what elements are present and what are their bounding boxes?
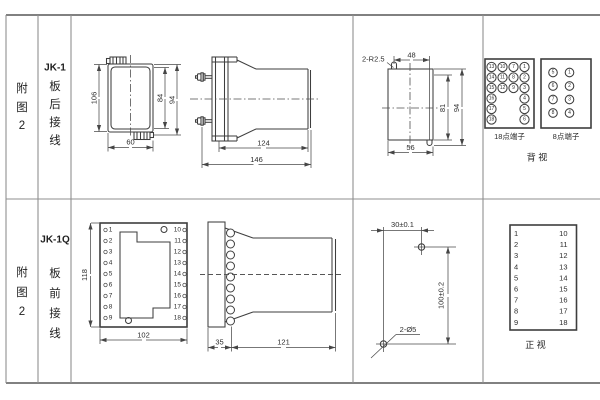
dim-81: 81 bbox=[438, 104, 447, 112]
dim-146: 146 bbox=[250, 155, 263, 164]
terminal-number: 8 bbox=[552, 110, 555, 116]
terminal-block-8-label: 8点端子 bbox=[553, 131, 580, 141]
terminal-number: 4 bbox=[514, 262, 518, 271]
terminal-number: 4 bbox=[109, 260, 113, 267]
terminal-number: 4 bbox=[568, 110, 571, 116]
dim-56: 56 bbox=[406, 143, 414, 152]
fig-char: 附 bbox=[16, 265, 28, 279]
terminal-number: 3 bbox=[523, 85, 526, 91]
slot-radius-label: 2-R2.5 bbox=[362, 55, 385, 64]
terminal-number: 10 bbox=[174, 227, 182, 234]
back-view-label: 背 视 bbox=[527, 152, 548, 163]
dim-48: 48 bbox=[407, 51, 415, 60]
wiring-char: 板 bbox=[49, 266, 61, 280]
terminal-number: 17 bbox=[489, 106, 495, 112]
terminal-screw-bottom bbox=[196, 117, 213, 125]
terminal-number: 6 bbox=[514, 285, 518, 294]
terminal-number: 12 bbox=[174, 249, 182, 256]
cutout-outline bbox=[388, 69, 433, 140]
terminal-number: 17 bbox=[174, 304, 182, 311]
terminal-rings bbox=[227, 229, 235, 325]
terminal-number: 15 bbox=[489, 85, 495, 91]
terminal-number: 15 bbox=[174, 282, 182, 289]
terminal-number: 18 bbox=[489, 117, 495, 123]
terminal-number: 6 bbox=[109, 282, 113, 289]
terminal-bump-bottom bbox=[134, 132, 150, 140]
dim-94: 94 bbox=[168, 96, 177, 104]
wiring-char: 线 bbox=[49, 326, 61, 340]
dim-118: 118 bbox=[80, 269, 89, 281]
terminal-block-8: 5 1 6 2 7 3 8 4 8点端子 bbox=[541, 59, 591, 141]
dim-94-cutout: 94 bbox=[452, 104, 461, 112]
drawing-drill-pattern: 30±0.1 100±0.2 2-Ø5 bbox=[371, 220, 456, 358]
plate-cutout bbox=[120, 232, 170, 318]
terminal-number: 8 bbox=[512, 75, 515, 81]
terminal-number: 12 bbox=[559, 251, 567, 260]
terminal-number: 2 bbox=[523, 75, 526, 81]
fig-char: 图 bbox=[16, 101, 28, 114]
terminal-number: 18 bbox=[559, 318, 567, 327]
wiring-char: 前 bbox=[49, 286, 61, 300]
wiring-char: 接 bbox=[49, 116, 61, 129]
terminal-number: 17 bbox=[559, 307, 567, 316]
terminal-number: 1 bbox=[568, 70, 571, 76]
terminal-number: 1 bbox=[109, 227, 113, 234]
terminal-number: 7 bbox=[109, 293, 113, 300]
dim-100: 100±0.2 bbox=[437, 282, 446, 309]
row-jk1-title: JK-1 板 后 接 线 bbox=[44, 63, 66, 148]
terminal-number: 13 bbox=[559, 262, 567, 271]
diagram-canvas: 附 图 2 JK-1 板 后 接 线 106 bbox=[0, 0, 600, 400]
terminal-number: 9 bbox=[512, 85, 515, 91]
terminal-number: 11 bbox=[560, 240, 568, 249]
fig-char: 2 bbox=[19, 120, 25, 132]
terminal-number: 11 bbox=[174, 238, 181, 245]
terminal-number: 15 bbox=[559, 285, 567, 294]
terminal-block-18: 13 10 7 1 14 11 8 2 15 12 9 3 16 4 17 5 … bbox=[485, 59, 534, 141]
terminal-number: 14 bbox=[559, 273, 567, 282]
dim-121: 121 bbox=[277, 338, 290, 347]
terminal-number: 8 bbox=[109, 304, 113, 311]
terminal-number: 12 bbox=[500, 85, 506, 91]
terminal-number: 13 bbox=[489, 64, 495, 70]
terminal-number: 1 bbox=[523, 64, 526, 70]
drawing-jk1-side-view: 124 146 bbox=[190, 57, 318, 168]
mount-hole-top bbox=[161, 227, 167, 233]
fig-char: 附 bbox=[16, 81, 28, 95]
terminal-number: 14 bbox=[489, 75, 495, 81]
row-jk1-figure-label: 附 图 2 bbox=[16, 81, 28, 132]
dim-124: 124 bbox=[257, 139, 270, 148]
screw-slot-bottom bbox=[427, 140, 432, 146]
terminal-number: 5 bbox=[552, 70, 555, 76]
wiring-char: 板 bbox=[49, 79, 61, 93]
dim-102: 102 bbox=[137, 331, 150, 340]
terminal-number: 13 bbox=[174, 260, 182, 267]
terminal-number: 2 bbox=[109, 238, 113, 245]
fig-char: 2 bbox=[19, 306, 25, 318]
terminal-block-18-label: 18点端子 bbox=[494, 131, 525, 141]
dim-60: 60 bbox=[126, 138, 134, 147]
terminal-number: 3 bbox=[109, 249, 113, 256]
dim-35: 35 bbox=[215, 338, 223, 347]
terminal-number: 2 bbox=[568, 83, 571, 89]
wiring-char: 线 bbox=[49, 133, 61, 147]
terminal-number: 18 bbox=[174, 315, 182, 322]
terminal-number: 4 bbox=[523, 96, 526, 102]
dim-84: 84 bbox=[156, 94, 165, 102]
terminal-number: 9 bbox=[514, 318, 518, 327]
terminal-number: 7 bbox=[512, 64, 515, 70]
terminal-screw-top bbox=[196, 73, 213, 81]
terminal-number: 5 bbox=[514, 273, 518, 282]
hole-diameter-label: 2-Ø5 bbox=[400, 325, 417, 334]
terminal-number: 5 bbox=[109, 271, 113, 278]
drawing-jk1q-front-view: 1 2 3 4 5 6 7 8 9 10 11 12 13 14 15 16 1… bbox=[80, 223, 187, 344]
row-jk1q-title: JK-1Q 板 前 接 线 bbox=[40, 235, 70, 341]
terminal-number: 16 bbox=[489, 96, 495, 102]
drawing-jk1-rear-view: 106 84 94 60 bbox=[90, 55, 182, 152]
terminal-number: 1 bbox=[514, 229, 518, 238]
terminal-number: 6 bbox=[523, 117, 526, 123]
terminal-number: 3 bbox=[568, 97, 571, 103]
terminal-number: 7 bbox=[514, 296, 518, 305]
fig-char: 图 bbox=[16, 286, 28, 299]
row-jk1q-figure-label: 附 图 2 bbox=[16, 265, 28, 318]
model-label: JK-1 bbox=[44, 63, 66, 74]
relay-outline-drawing-sheet: 附 图 2 JK-1 板 后 接 线 106 bbox=[0, 0, 600, 400]
terminal-number: 9 bbox=[109, 315, 113, 322]
wiring-char: 接 bbox=[49, 307, 61, 320]
terminal-number: 2 bbox=[514, 240, 518, 249]
terminal-bump-top bbox=[110, 57, 126, 64]
dim-106: 106 bbox=[90, 92, 99, 105]
terminal-number: 11 bbox=[500, 75, 505, 81]
dim-30: 30±0.1 bbox=[391, 220, 414, 229]
terminal-number: 6 bbox=[552, 83, 555, 89]
terminal-number: 10 bbox=[500, 64, 506, 70]
model-label: JK-1Q bbox=[40, 235, 70, 246]
terminal-number: 16 bbox=[559, 296, 567, 305]
terminal-number: 3 bbox=[514, 251, 518, 260]
terminal-number: 16 bbox=[174, 293, 182, 300]
terminal-number: 7 bbox=[552, 97, 555, 103]
front-view-label: 正 视 bbox=[525, 339, 546, 350]
wiring-char: 后 bbox=[49, 98, 61, 111]
terminal-map-front: 1 2 3 4 5 6 7 8 9 10 11 12 13 14 15 16 1… bbox=[510, 225, 577, 350]
terminal-number: 10 bbox=[559, 229, 567, 238]
terminal-number: 5 bbox=[523, 106, 526, 112]
terminal-number: 14 bbox=[174, 271, 182, 278]
terminal-number: 8 bbox=[514, 307, 518, 316]
drawing-jk1-panel-cutout: 2-R2.5 48 81 94 56 bbox=[362, 51, 466, 157]
drawing-jk1q-side-view: 35 121 bbox=[200, 222, 342, 352]
